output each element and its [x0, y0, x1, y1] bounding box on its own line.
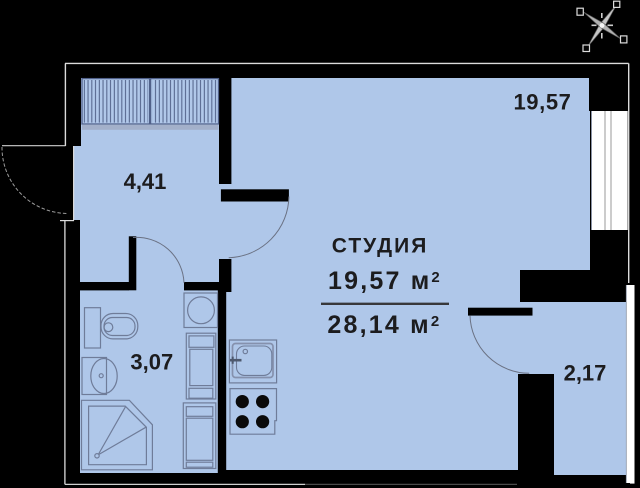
svg-text:СТУДИЯ: СТУДИЯ [332, 235, 429, 258]
svg-text:28,14 м2: 28,14 м2 [327, 311, 441, 339]
svg-text:19,57: 19,57 [513, 90, 571, 115]
svg-text:4,41: 4,41 [124, 169, 167, 194]
svg-text:19,57 м2: 19,57 м2 [328, 267, 442, 295]
svg-text:2,17: 2,17 [564, 361, 607, 386]
svg-text:3,07: 3,07 [130, 350, 173, 375]
